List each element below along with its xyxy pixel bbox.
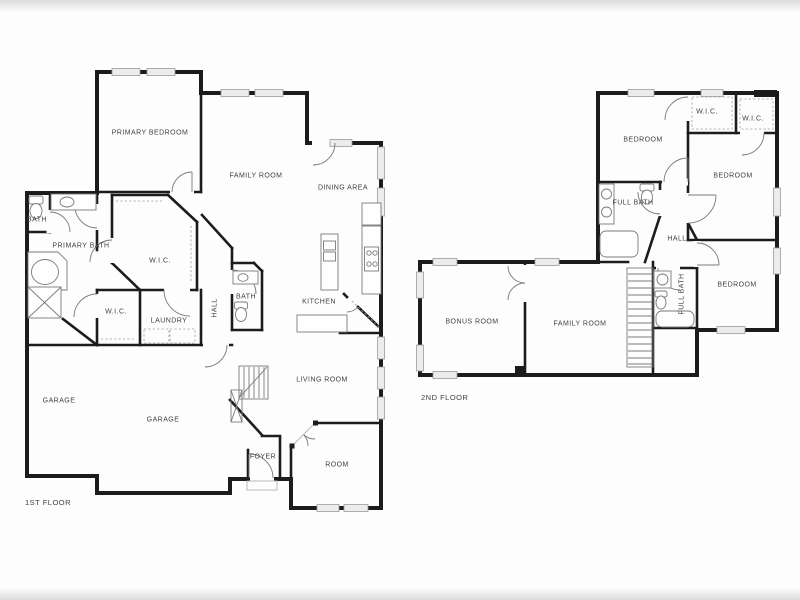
floor1-door-gaps [47, 139, 337, 483]
closet-rod [692, 97, 732, 129]
vanity-icon [654, 271, 671, 288]
toilet-icon [29, 196, 43, 204]
floor1-caption: 1ST FLOOR [25, 498, 71, 507]
double-vanity-icon [599, 184, 614, 224]
fridge-icon [362, 203, 381, 225]
dryer-icon [170, 329, 195, 343]
closet-rod [740, 99, 773, 129]
floor2-door-arcs [508, 97, 764, 300]
kitchen-counter-icon [297, 315, 347, 332]
floor2-caption: 2ND FLOOR [421, 393, 468, 402]
bathtub-icon [656, 311, 694, 327]
floor1-staircase [239, 366, 268, 399]
floor2-staircase [627, 268, 653, 367]
bathtub-icon [600, 231, 638, 257]
floorplan-canvas: PRIMARY BEDROOMFAMILY ROOMDINING AREABAT… [0, 0, 800, 600]
floorplan-drawing [0, 0, 800, 600]
washer-icon [144, 329, 169, 343]
